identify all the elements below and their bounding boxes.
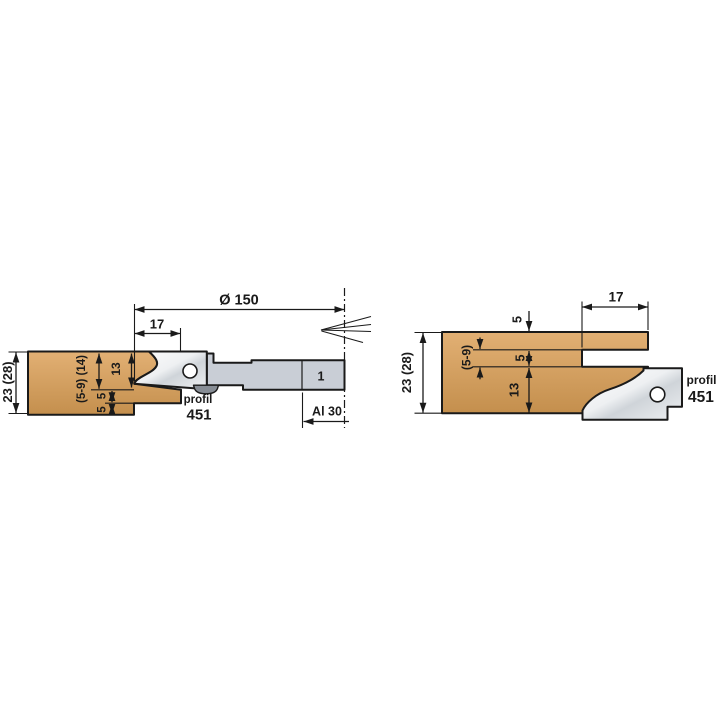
dim-bottom-depth-label: 13 — [507, 383, 522, 397]
knife-hole-icon — [650, 387, 665, 402]
left-diagram-cutterhead-section: Ø 150 17 23 (28) (5-9) (14) 13 5 5 profi… — [0, 288, 371, 428]
dim-variable-left-label: (5-9) (14) — [76, 355, 88, 403]
dim-step-b-label: 5 — [97, 406, 109, 413]
profile-word-right: profil — [687, 373, 717, 387]
dim-tenon-length-label: 17 — [150, 317, 164, 332]
dim-bore-label: Al 30 — [312, 405, 342, 419]
dim-slot-depth-label: 17 — [608, 290, 623, 305]
opposite-knife-icon — [321, 317, 371, 343]
dim-diameter-label: Ø 150 — [219, 293, 259, 309]
profile-number-left: 451 — [186, 407, 211, 424]
clamp-screw-head-icon — [194, 385, 219, 394]
dim-step-a-label: 5 — [97, 392, 109, 399]
spacer-ring-label: 1 — [318, 370, 325, 384]
profile-word-left: profil — [184, 394, 213, 406]
profile-cutter-diagram: Ø 150 17 23 (28) (5-9) (14) 13 5 5 profi… — [0, 0, 720, 720]
right-diagram-counter-profile-section: 17 5 (5-9) 5 13 23 (28) profil 451 — [399, 290, 716, 420]
dim-slot-height-label: 5 — [513, 354, 527, 361]
dim-lip-label: 5 — [510, 316, 524, 323]
dim-top-depth-label: 13 — [109, 362, 123, 376]
technical-drawing-page: Ø 150 17 23 (28) (5-9) (14) 13 5 5 profi… — [0, 0, 720, 720]
profile-number-right: 451 — [688, 389, 714, 406]
knife-hole-icon — [183, 364, 197, 378]
dim-variable-right-label: (5-9) — [460, 345, 474, 370]
dim-height-left-label: 23 (28) — [0, 361, 15, 402]
dim-height-right-label: 23 (28) — [399, 352, 414, 393]
